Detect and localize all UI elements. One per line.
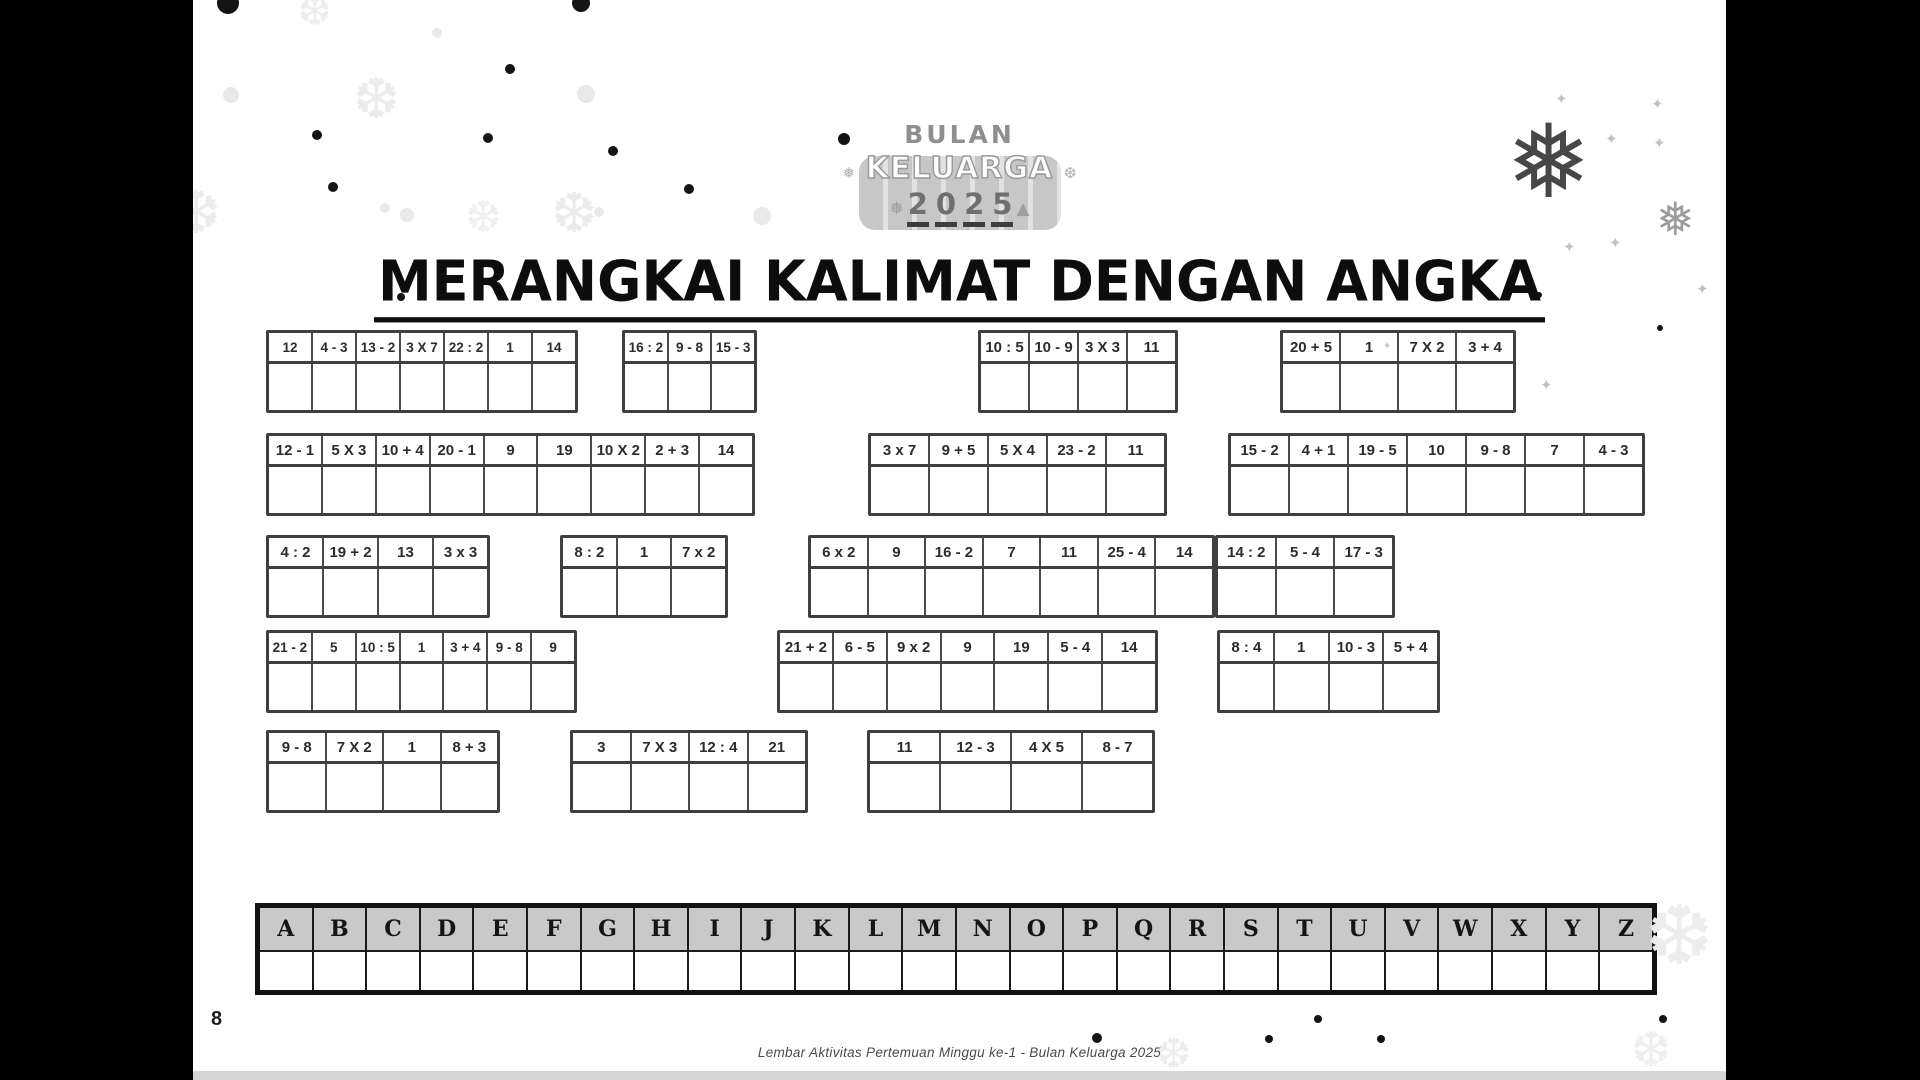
math-expression: 23 - 2 xyxy=(1057,442,1095,459)
dot-decoration xyxy=(312,130,322,140)
math-label-cell: 23 - 2 xyxy=(1048,436,1107,464)
math-expression: 10 - 9 xyxy=(1034,339,1072,356)
answer-cell xyxy=(669,364,713,410)
letterbox-left xyxy=(0,0,193,1080)
dot-decoration xyxy=(483,133,493,143)
math-label-cell: 1 xyxy=(401,633,445,661)
math-label-cell: 14 xyxy=(700,436,752,464)
math-expression: 7 xyxy=(1007,544,1015,561)
dot-decoration xyxy=(1265,1035,1273,1043)
alphabet-key-table: ABCDEFGHIJKLMNOPQRSTUVWXYZ xyxy=(255,903,1657,995)
logo-year-digit: 0 xyxy=(935,187,957,227)
math-expression: 19 xyxy=(1013,639,1030,656)
alphabet-letter: A xyxy=(277,916,294,942)
answer-cell xyxy=(1220,664,1275,710)
math-label-cell: 14 xyxy=(533,333,575,361)
snowflake-icon: ❆ xyxy=(465,196,502,240)
math-label-cell: 21 xyxy=(749,733,806,761)
answer-cell xyxy=(357,664,401,710)
alphabet-letter-cell: T xyxy=(1279,908,1333,950)
dot-decoration xyxy=(1377,1035,1385,1043)
sparkle-icon: ✦ xyxy=(1383,342,1391,352)
math-expression: 9 x 2 xyxy=(897,639,930,656)
math-label-cell: 10 + 4 xyxy=(377,436,431,464)
dot-decoration xyxy=(223,87,239,103)
math-expression: 9 xyxy=(963,639,971,656)
math-label-cell: 19 + 2 xyxy=(324,538,379,566)
dot-decoration xyxy=(400,208,414,222)
dot-decoration xyxy=(1510,268,1516,274)
answer-cell xyxy=(1467,467,1526,513)
logo-year-digit: 5 xyxy=(991,187,1013,227)
answer-cell xyxy=(485,467,539,513)
alphabet-letter: D xyxy=(437,916,456,942)
dot-decoration xyxy=(608,146,618,156)
math-label-cell: 1 xyxy=(384,733,442,761)
answer-cell xyxy=(1384,664,1437,710)
answer-cell xyxy=(1335,569,1392,615)
math-label-cell: 5 - 4 xyxy=(1049,633,1103,661)
math-label-cell: 7 X 3 xyxy=(632,733,691,761)
alphabet-value-cell xyxy=(903,952,957,990)
alphabet-letter: B xyxy=(330,916,349,942)
answer-cell xyxy=(690,764,749,810)
answer-cell xyxy=(930,467,989,513)
math-expression: 5 X 4 xyxy=(1000,442,1035,459)
dot-decoration xyxy=(1314,1015,1322,1023)
sparkle-icon: ✦ xyxy=(1609,236,1622,251)
math-expression: 9 - 8 xyxy=(496,640,523,655)
answer-cell xyxy=(592,467,646,513)
answer-cell xyxy=(1049,664,1103,710)
worksheet-slide: ❅ ❆ BULAN KELUARGA ❅2025▲ MERANGKAI KALI… xyxy=(193,0,1726,1071)
answer-cell xyxy=(1218,569,1277,615)
alphabet-letter: E xyxy=(492,916,509,942)
answer-cell xyxy=(811,569,869,615)
math-label-cell: 3 x 7 xyxy=(871,436,930,464)
math-label-cell: 19 - 5 xyxy=(1349,436,1408,464)
math-label-cell: 9 xyxy=(869,538,927,566)
alphabet-value-cell xyxy=(314,952,368,990)
math-label-cell: 10 - 3 xyxy=(1330,633,1385,661)
bell-icon: ❅ xyxy=(889,199,903,219)
math-label-cell: 4 - 3 xyxy=(1585,436,1642,464)
math-expression: 9 - 8 xyxy=(676,340,703,355)
alphabet-value-cell xyxy=(1064,952,1118,990)
math-label-cell: 10 - 9 xyxy=(1030,333,1079,361)
answer-cell xyxy=(1275,664,1330,710)
alphabet-value-cell xyxy=(1171,952,1225,990)
answer-cell xyxy=(563,569,618,615)
footer-text: Lembar Aktivitas Pertemuan Minggu ke-1 -… xyxy=(758,1045,1161,1060)
snowflake-icon: ❆ xyxy=(298,0,332,32)
answer-cell xyxy=(870,764,941,810)
math-expression: 17 - 3 xyxy=(1345,544,1383,561)
math-label-cell: 17 - 3 xyxy=(1335,538,1392,566)
math-expression: 9 + 5 xyxy=(942,442,976,459)
answer-cell xyxy=(1012,764,1083,810)
dot-decoration xyxy=(838,133,850,145)
dot-decoration xyxy=(432,28,442,38)
math-expression: 12 : 4 xyxy=(699,739,737,756)
answer-cell xyxy=(941,764,1012,810)
alphabet-letter-cell: V xyxy=(1386,908,1440,950)
math-label-cell: 12 : 4 xyxy=(690,733,749,761)
answer-cell xyxy=(1128,364,1175,410)
math-expression: 8 - 7 xyxy=(1102,739,1132,756)
math-label-cell: 7 X 2 xyxy=(327,733,385,761)
math-expression: 14 xyxy=(1176,544,1193,561)
dot-decoration xyxy=(572,0,590,12)
snowflake-icon: ❆ xyxy=(1156,1033,1191,1071)
dot-decoration xyxy=(505,64,515,74)
alphabet-value-cell xyxy=(1386,952,1440,990)
alphabet-letter: H xyxy=(651,916,672,942)
answer-cell xyxy=(327,764,385,810)
math-expression: 11 xyxy=(1061,544,1077,561)
dot-decoration xyxy=(577,85,595,103)
math-label-cell: 1 xyxy=(618,538,673,566)
alphabet-header-row: ABCDEFGHIJKLMNOPQRSTUVWXYZ xyxy=(260,908,1652,952)
math-expression: 10 : 5 xyxy=(985,339,1023,356)
math-expression: 21 xyxy=(768,739,785,756)
math-word-table: 20 + 517 X 23 + 4 xyxy=(1280,330,1516,413)
answer-cell xyxy=(1079,364,1128,410)
math-expression: 7 X 3 xyxy=(642,739,677,756)
alphabet-value-cell xyxy=(260,952,314,990)
alphabet-letter: U xyxy=(1348,916,1367,942)
math-expression: 25 - 4 xyxy=(1108,544,1146,561)
math-expression: 21 - 2 xyxy=(273,640,308,655)
alphabet-letter-cell: R xyxy=(1171,908,1225,950)
alphabet-letter-cell: M xyxy=(903,908,957,950)
math-expression: 3 x 7 xyxy=(883,442,916,459)
math-expression: 12 xyxy=(282,340,297,355)
math-label-cell: 7 xyxy=(984,538,1042,566)
math-expression: 2 + 3 xyxy=(655,442,689,459)
math-word-table: 4 : 219 + 2133 x 3 xyxy=(266,535,490,618)
math-label-cell: 10 xyxy=(1408,436,1467,464)
answer-cell xyxy=(942,664,996,710)
math-word-table: 3 x 79 + 55 X 423 - 211 xyxy=(868,433,1167,516)
alphabet-value-cell xyxy=(474,952,528,990)
snowflake-icon: ❅ xyxy=(1656,196,1695,242)
math-expression: 3 + 4 xyxy=(1468,339,1502,356)
math-label-cell: 21 + 2 xyxy=(780,633,834,661)
sparkle-icon: ✦ xyxy=(1696,282,1709,297)
alphabet-value-cell xyxy=(1118,952,1172,990)
math-label-cell: 9 - 8 xyxy=(1467,436,1526,464)
alphabet-letter-cell: K xyxy=(796,908,850,950)
math-expression: 1 xyxy=(640,544,648,561)
math-word-table: 14 : 25 - 417 - 3 xyxy=(1215,535,1395,618)
math-expression: 9 - 8 xyxy=(1480,442,1510,459)
answer-cell xyxy=(401,364,445,410)
math-label-cell: 14 xyxy=(1103,633,1155,661)
math-expression: 15 - 2 xyxy=(1240,442,1278,459)
alphabet-letter: M xyxy=(917,916,941,942)
answer-cell xyxy=(538,467,592,513)
alphabet-letter-cell: X xyxy=(1493,908,1547,950)
sparkle-icon: ✦ xyxy=(1563,240,1576,255)
screen: ❅ ❆ BULAN KELUARGA ❅2025▲ MERANGKAI KALI… xyxy=(0,0,1920,1080)
math-label-cell: 2 + 3 xyxy=(646,436,700,464)
math-label-cell: 3 X 3 xyxy=(1079,333,1128,361)
math-expression: 11 xyxy=(897,739,913,756)
math-expression: 3 xyxy=(597,739,605,756)
answer-cell xyxy=(618,569,673,615)
alphabet-letter-cell: S xyxy=(1225,908,1279,950)
answer-cell xyxy=(445,364,489,410)
answer-cell xyxy=(834,664,888,710)
answer-cell xyxy=(926,569,984,615)
answer-cell xyxy=(712,364,754,410)
alphabet-letter: S xyxy=(1243,916,1259,942)
page-title: MERANGKAI KALIMAT DENGAN ANGKA xyxy=(374,249,1545,323)
math-expression: 5 X 3 xyxy=(331,442,366,459)
answer-cell xyxy=(434,569,487,615)
alphabet-letter: R xyxy=(1188,916,1206,942)
math-label-cell: 15 - 2 xyxy=(1231,436,1290,464)
alphabet-letter-cell: Q xyxy=(1118,908,1172,950)
answer-cell xyxy=(749,764,806,810)
logo-line-bulan: BULAN xyxy=(845,120,1075,149)
math-expression: 5 xyxy=(330,640,338,655)
alphabet-letter: Y xyxy=(1565,916,1581,942)
math-label-cell: 1 xyxy=(1275,633,1330,661)
math-expression: 7 X 2 xyxy=(337,739,372,756)
snowflake-icon: ❆ xyxy=(551,186,597,241)
alphabet-letter: Q xyxy=(1134,916,1153,942)
math-expression: 3 + 4 xyxy=(450,640,480,655)
math-label-cell: 20 - 1 xyxy=(431,436,485,464)
alphabet-letter: W xyxy=(1453,916,1478,942)
math-word-table: 10 : 510 - 93 X 311 xyxy=(978,330,1178,413)
math-expression: 14 xyxy=(546,340,561,355)
math-expression: 14 xyxy=(1121,639,1138,656)
answer-cell xyxy=(1156,569,1212,615)
dot-decoration xyxy=(1092,1033,1102,1043)
math-label-cell: 1 xyxy=(489,333,533,361)
math-expression: 14 : 2 xyxy=(1227,544,1265,561)
answer-cell xyxy=(1099,569,1157,615)
tree-icon: ▲ xyxy=(1016,199,1029,219)
math-expression: 10 xyxy=(1428,442,1445,459)
math-label-cell: 16 - 2 xyxy=(926,538,984,566)
math-word-table: 21 + 26 - 59 x 29195 - 414 xyxy=(777,630,1158,713)
math-expression: 3 X 7 xyxy=(406,340,438,355)
math-label-cell: 11 xyxy=(1128,333,1175,361)
answer-cell xyxy=(357,364,401,410)
math-label-cell: 7 x 2 xyxy=(672,538,725,566)
alphabet-letter: C xyxy=(384,916,402,942)
alphabet-letter-cell: I xyxy=(689,908,743,950)
footer: Lembar Aktivitas Pertemuan Minggu ke-1 -… xyxy=(193,1044,1726,1062)
sparkle-icon: ✦ xyxy=(1555,92,1568,107)
answer-cell xyxy=(1041,569,1099,615)
alphabet-answer-row xyxy=(260,952,1652,990)
math-word-table: 8 : 4110 - 35 + 4 xyxy=(1217,630,1440,713)
math-label-cell: 13 xyxy=(379,538,434,566)
alphabet-value-cell xyxy=(421,952,475,990)
answer-cell xyxy=(1341,364,1399,410)
answer-cell xyxy=(995,664,1049,710)
answer-cell xyxy=(646,467,700,513)
alphabet-letter-cell: J xyxy=(742,908,796,950)
dot-decoration xyxy=(753,207,771,225)
snowflake-icon: ❅ xyxy=(1506,112,1591,214)
answer-cell xyxy=(573,764,632,810)
answer-cell xyxy=(700,467,752,513)
math-label-cell: 20 + 5 xyxy=(1283,333,1341,361)
math-expression: 10 + 4 xyxy=(382,442,424,459)
logo-year-digit: 2 xyxy=(907,187,929,227)
alphabet-letter-cell: Y xyxy=(1547,908,1601,950)
math-label-cell: 3 x 3 xyxy=(434,538,487,566)
math-label-cell: 3 xyxy=(573,733,632,761)
math-label-cell: 21 - 2 xyxy=(269,633,313,661)
math-label-cell: 5 - 4 xyxy=(1277,538,1336,566)
answer-cell xyxy=(489,364,533,410)
math-expression: 1 xyxy=(408,739,416,756)
math-expression: 5 + 4 xyxy=(1394,639,1428,656)
answer-cell xyxy=(324,569,379,615)
dot-decoration xyxy=(684,184,694,194)
alphabet-letter: V xyxy=(1403,916,1420,942)
math-label-cell: 9 - 8 xyxy=(669,333,713,361)
alphabet-value-cell xyxy=(1332,952,1386,990)
math-expression: 16 : 2 xyxy=(629,340,664,355)
math-expression: 10 - 3 xyxy=(1337,639,1375,656)
math-expression: 4 : 2 xyxy=(280,544,310,561)
math-expression: 4 X 5 xyxy=(1029,739,1064,756)
logo-line-year: ❅2025▲ xyxy=(845,187,1075,227)
answer-cell xyxy=(532,664,574,710)
alphabet-value-cell xyxy=(850,952,904,990)
math-word-table: 16 : 29 - 815 - 3 xyxy=(622,330,757,413)
alphabet-value-cell xyxy=(635,952,689,990)
answer-cell xyxy=(533,364,575,410)
math-expression: 19 + 2 xyxy=(329,544,371,561)
answer-cell xyxy=(269,569,324,615)
math-word-table: 6 x 2916 - 271125 - 414 xyxy=(808,535,1215,618)
math-expression: 3 x 3 xyxy=(444,544,477,561)
alphabet-value-cell xyxy=(528,952,582,990)
math-label-cell: 13 - 2 xyxy=(357,333,401,361)
alphabet-value-cell xyxy=(1547,952,1601,990)
alphabet-letter-cell: F xyxy=(528,908,582,950)
math-expression: 20 + 5 xyxy=(1290,339,1332,356)
math-label-cell: 14 : 2 xyxy=(1218,538,1277,566)
math-label-cell: 15 - 3 xyxy=(712,333,754,361)
bottom-strip xyxy=(193,1071,1726,1080)
alphabet-letter-cell: L xyxy=(850,908,904,950)
answer-cell xyxy=(269,664,313,710)
alphabet-letter: F xyxy=(546,916,562,942)
alphabet-value-cell xyxy=(1279,952,1333,990)
alphabet-value-cell xyxy=(689,952,743,990)
alphabet-letter: J xyxy=(763,916,773,942)
page-number: 8 xyxy=(211,1008,222,1031)
math-expression: 7 x 2 xyxy=(682,544,715,561)
alphabet-letter: O xyxy=(1027,916,1046,942)
snowflake-icon: ❆ xyxy=(193,183,221,243)
math-label-cell: 12 - 1 xyxy=(269,436,323,464)
math-label-cell: 8 - 7 xyxy=(1083,733,1152,761)
math-expression: 6 x 2 xyxy=(822,544,855,561)
math-expression: 19 xyxy=(556,442,573,459)
alphabet-letter: G xyxy=(598,916,617,942)
math-expression: 12 - 1 xyxy=(276,442,314,459)
math-label-cell: 11 xyxy=(1107,436,1164,464)
math-label-cell: 9 xyxy=(485,436,539,464)
math-expression: 20 - 1 xyxy=(437,442,475,459)
answer-cell xyxy=(431,467,485,513)
alphabet-letter-cell: C xyxy=(367,908,421,950)
dot-decoration xyxy=(217,0,239,14)
math-expression: 9 - 8 xyxy=(282,739,312,756)
math-label-cell: 4 + 1 xyxy=(1290,436,1349,464)
answer-cell xyxy=(401,664,445,710)
alphabet-letter-cell: B xyxy=(314,908,368,950)
sparkle-icon: ✦ xyxy=(1653,136,1666,151)
math-expression: 16 - 2 xyxy=(935,544,973,561)
math-label-cell: 8 : 2 xyxy=(563,538,618,566)
math-label-cell: 5 + 4 xyxy=(1384,633,1437,661)
math-label-cell: 5 X 4 xyxy=(989,436,1048,464)
math-word-table: 37 X 312 : 421 xyxy=(570,730,808,813)
math-expression: 5 - 4 xyxy=(1060,639,1090,656)
math-label-cell: 4 : 2 xyxy=(269,538,324,566)
alphabet-value-cell xyxy=(582,952,636,990)
alphabet-letter: Z xyxy=(1618,916,1634,942)
math-label-cell: 5 X 3 xyxy=(323,436,377,464)
letterbox-right xyxy=(1726,0,1920,1080)
dot-decoration xyxy=(397,293,405,301)
math-expression: 8 : 2 xyxy=(574,544,604,561)
math-label-cell: 3 + 4 xyxy=(1457,333,1513,361)
math-label-cell: 3 + 4 xyxy=(444,633,488,661)
math-expression: 1 xyxy=(506,340,514,355)
math-expression: 21 + 2 xyxy=(785,639,827,656)
math-word-table: 9 - 87 X 218 + 3 xyxy=(266,730,500,813)
alphabet-letter-cell: D xyxy=(421,908,475,950)
answer-cell xyxy=(780,664,834,710)
alphabet-value-cell xyxy=(796,952,850,990)
title-row: MERANGKAI KALIMAT DENGAN ANGKA xyxy=(193,250,1726,321)
math-label-cell: 25 - 4 xyxy=(1099,538,1157,566)
alphabet-letter: P xyxy=(1082,916,1099,942)
answer-cell xyxy=(269,364,313,410)
math-expression: 9 xyxy=(892,544,900,561)
math-expression: 4 - 3 xyxy=(320,340,347,355)
dot-decoration xyxy=(380,203,390,213)
math-expression: 13 - 2 xyxy=(361,340,396,355)
alphabet-letter: I xyxy=(710,916,720,942)
math-expression: 8 : 4 xyxy=(1231,639,1261,656)
answer-cell xyxy=(1103,664,1155,710)
math-word-table: 15 - 24 + 119 - 5109 - 874 - 3 xyxy=(1228,433,1645,516)
answer-cell xyxy=(313,364,357,410)
math-label-cell: 22 : 2 xyxy=(445,333,489,361)
math-label-cell: 5 xyxy=(313,633,357,661)
math-label-cell: 9 + 5 xyxy=(930,436,989,464)
math-label-cell: 3 X 7 xyxy=(401,333,445,361)
math-label-cell: 11 xyxy=(870,733,941,761)
alphabet-letter: K xyxy=(812,916,831,942)
answer-cell xyxy=(888,664,942,710)
answer-cell xyxy=(625,364,669,410)
